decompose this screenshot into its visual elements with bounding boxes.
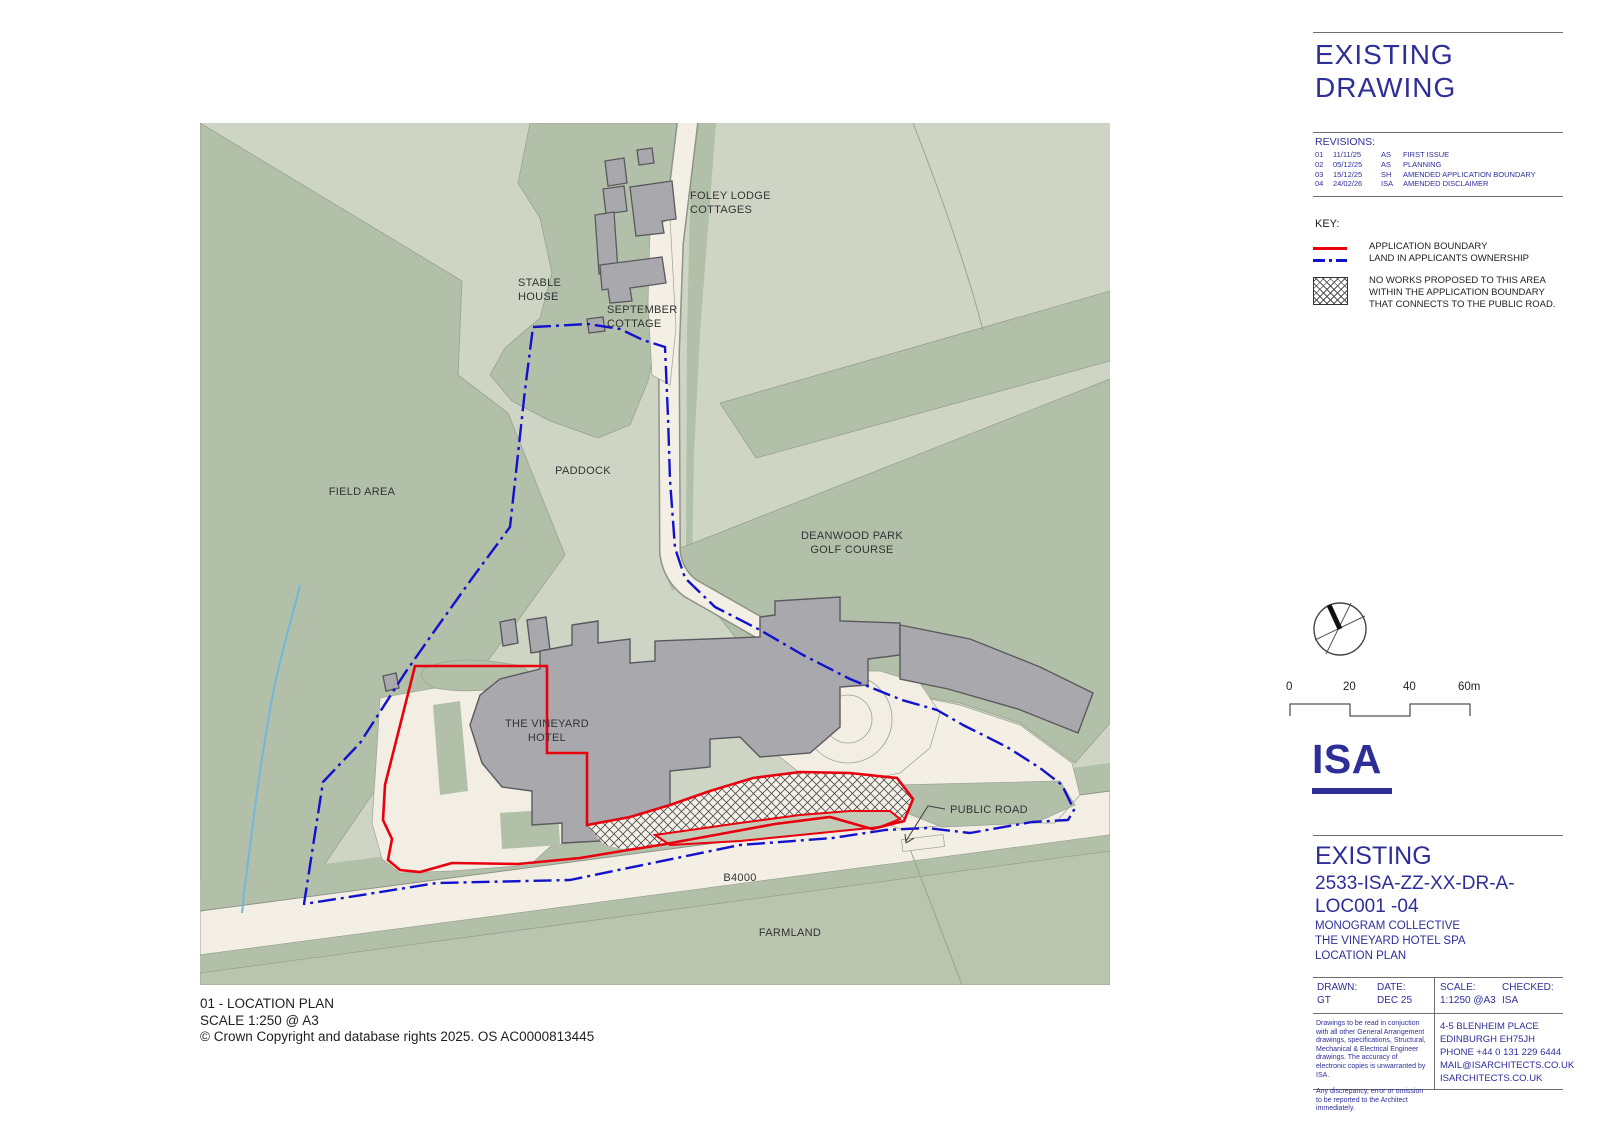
architect-address: 4-5 BLENHEIM PLACE EDINBURGH EH75JH PHON…	[1440, 1020, 1574, 1085]
sheet-name: LOCATION PLAN	[1315, 949, 1466, 964]
key-no-works-label: NO WORKS PROPOSED TO THIS AREA WITHIN TH…	[1369, 275, 1556, 311]
revision-row: 01 11/11/25 AS FIRST ISSUE	[1315, 150, 1563, 160]
sheet-status-line1: EXISTING	[1315, 38, 1456, 71]
scale-label: SCALE:	[1440, 982, 1476, 993]
divider	[1313, 132, 1563, 133]
divider-vertical	[1434, 977, 1435, 1089]
label-stable-house: STABLE	[518, 277, 561, 289]
disclaimer-para1: Drawings to be read in conjuction with a…	[1316, 1020, 1428, 1080]
rev-by: AS	[1381, 150, 1403, 160]
checked-value: ISA	[1502, 995, 1518, 1006]
caption-scale: SCALE 1:250 @ A3	[200, 1013, 594, 1030]
rev-by: SH	[1381, 170, 1403, 180]
label-field-area: FIELD AREA	[329, 486, 396, 498]
plan-caption: 01 - LOCATION PLAN SCALE 1:250 @ A3 © Cr…	[200, 996, 594, 1046]
ownership-boundary-swatch	[1313, 259, 1347, 262]
label-b4000: B4000	[723, 872, 756, 884]
label-paddock: PADDOCK	[555, 465, 611, 477]
drawing-number: 2533-ISA-ZZ-XX-DR-A- LOC001 -04	[1315, 872, 1515, 918]
drawing-info: MONOGRAM COLLECTIVE THE VINEYARD HOTEL S…	[1315, 919, 1466, 964]
key-ownership-label: LAND IN APPLICANTS OWNERSHIP	[1369, 253, 1529, 265]
label-golf-course: GOLF COURSE	[810, 544, 893, 556]
key-title: KEY:	[1315, 218, 1339, 230]
label-september-cottage: SEPTEMBER	[607, 304, 678, 316]
label-foley-lodge-2: COTTAGES	[690, 204, 752, 216]
no-works-hatch-swatch	[1313, 277, 1348, 305]
revision-row: 03 15/12/25 SH AMENDED APPLICATION BOUND…	[1315, 170, 1563, 180]
scale-tick-0: 0	[1286, 681, 1292, 693]
divider	[1313, 196, 1563, 197]
label-september-cottage-2: COTTAGE	[607, 318, 661, 330]
rev-desc: FIRST ISSUE	[1403, 150, 1563, 160]
isa-logo: ISA	[1312, 736, 1382, 783]
revision-row: 04 24/02/26 ISA AMENDED DISCLAIMER	[1315, 179, 1563, 189]
scale-value: 1:1250 @A3	[1440, 995, 1496, 1006]
caption-title: 01 - LOCATION PLAN	[200, 996, 594, 1013]
rev-no: 01	[1315, 150, 1333, 160]
label-deanwood-park: DEANWOOD PARK	[801, 530, 903, 542]
rev-date: 11/11/25	[1333, 150, 1381, 160]
drawing-status: EXISTING	[1315, 842, 1432, 871]
key-no-works-line2: WITHIN THE APPLICATION BOUNDARY	[1369, 287, 1556, 299]
application-boundary-swatch	[1313, 247, 1347, 250]
key-no-works-line3: THAT CONNECTS TO THE PUBLIC ROAD.	[1369, 299, 1556, 311]
divider	[1313, 835, 1563, 836]
disclaimer-para2: Any discrepancy, error or omission to be…	[1316, 1088, 1428, 1114]
rev-desc: PLANNING	[1403, 160, 1563, 170]
sheet-status-header: EXISTING DRAWING	[1315, 38, 1456, 104]
disclaimer: Drawings to be read in conjuction with a…	[1316, 1020, 1428, 1114]
sheet-status-line2: DRAWING	[1315, 71, 1456, 104]
label-stable-house-2: HOUSE	[518, 291, 559, 303]
label-vineyard-hotel-2: HOTEL	[528, 732, 566, 744]
scale-tick-60: 60m	[1458, 681, 1480, 693]
rev-no: 02	[1315, 160, 1333, 170]
label-foley-lodge: FOLEY LODGE	[690, 190, 771, 202]
project-name: THE VINEYARD HOTEL SPA	[1315, 934, 1466, 949]
client-name: MONOGRAM COLLECTIVE	[1315, 919, 1466, 934]
scale-tick-20: 20	[1343, 681, 1356, 693]
isa-logo-underline	[1312, 788, 1392, 794]
address-phone: PHONE +44 0 131 229 6444	[1440, 1046, 1574, 1059]
revision-row: 02 05/12/25 AS PLANNING	[1315, 160, 1563, 170]
key-no-works-line1: NO WORKS PROPOSED TO THIS AREA	[1369, 275, 1556, 287]
key-application-boundary-label: APPLICATION BOUNDARY	[1369, 241, 1487, 253]
rev-no: 04	[1315, 179, 1333, 189]
rev-by: AS	[1381, 160, 1403, 170]
scale-tick-40: 40	[1403, 681, 1416, 693]
location-plan-map: FOLEY LODGE COTTAGES STABLE HOUSE SEPTEM…	[200, 123, 1110, 985]
drawing-number-line2: LOC001 -04	[1315, 895, 1515, 918]
rev-desc: AMENDED APPLICATION BOUNDARY	[1403, 170, 1563, 180]
rev-date: 15/12/25	[1333, 170, 1381, 180]
label-farmland: FARMLAND	[759, 927, 821, 939]
divider	[1313, 977, 1563, 978]
north-arrow-icon	[1310, 598, 1372, 660]
address-email: MAIL@ISARCHITECTS.CO.UK	[1440, 1059, 1574, 1072]
scale-bar: 0 20 40 60m	[1286, 676, 1496, 720]
label-public-road: PUBLIC ROAD	[950, 804, 1028, 816]
divider	[1313, 32, 1563, 33]
drawing-number-line1: 2533-ISA-ZZ-XX-DR-A-	[1315, 872, 1515, 895]
divider	[1313, 1013, 1563, 1014]
drawing-sheet: FOLEY LODGE COTTAGES STABLE HOUSE SEPTEM…	[0, 0, 1600, 1131]
address-line2: EDINBURGH EH75JH	[1440, 1033, 1574, 1046]
rev-by: ISA	[1381, 179, 1403, 189]
rev-date: 24/02/26	[1333, 179, 1381, 189]
revisions-table: 01 11/11/25 AS FIRST ISSUE 02 05/12/25 A…	[1315, 150, 1563, 189]
label-vineyard-hotel: THE VINEYARD	[505, 718, 589, 730]
drawn-value: GT	[1317, 995, 1331, 1006]
drawn-label: DRAWN:	[1317, 982, 1357, 993]
checked-label: CHECKED:	[1502, 982, 1554, 993]
address-website: ISARCHITECTS.CO.UK	[1440, 1072, 1574, 1085]
date-label: DATE:	[1377, 982, 1406, 993]
caption-copyright: © Crown Copyright and database rights 20…	[200, 1029, 594, 1046]
rev-no: 03	[1315, 170, 1333, 180]
rev-date: 05/12/25	[1333, 160, 1381, 170]
rev-desc: AMENDED DISCLAIMER	[1403, 179, 1563, 189]
address-line1: 4-5 BLENHEIM PLACE	[1440, 1020, 1574, 1033]
revisions-title: REVISIONS:	[1315, 136, 1375, 148]
date-value: DEC 25	[1377, 995, 1412, 1006]
